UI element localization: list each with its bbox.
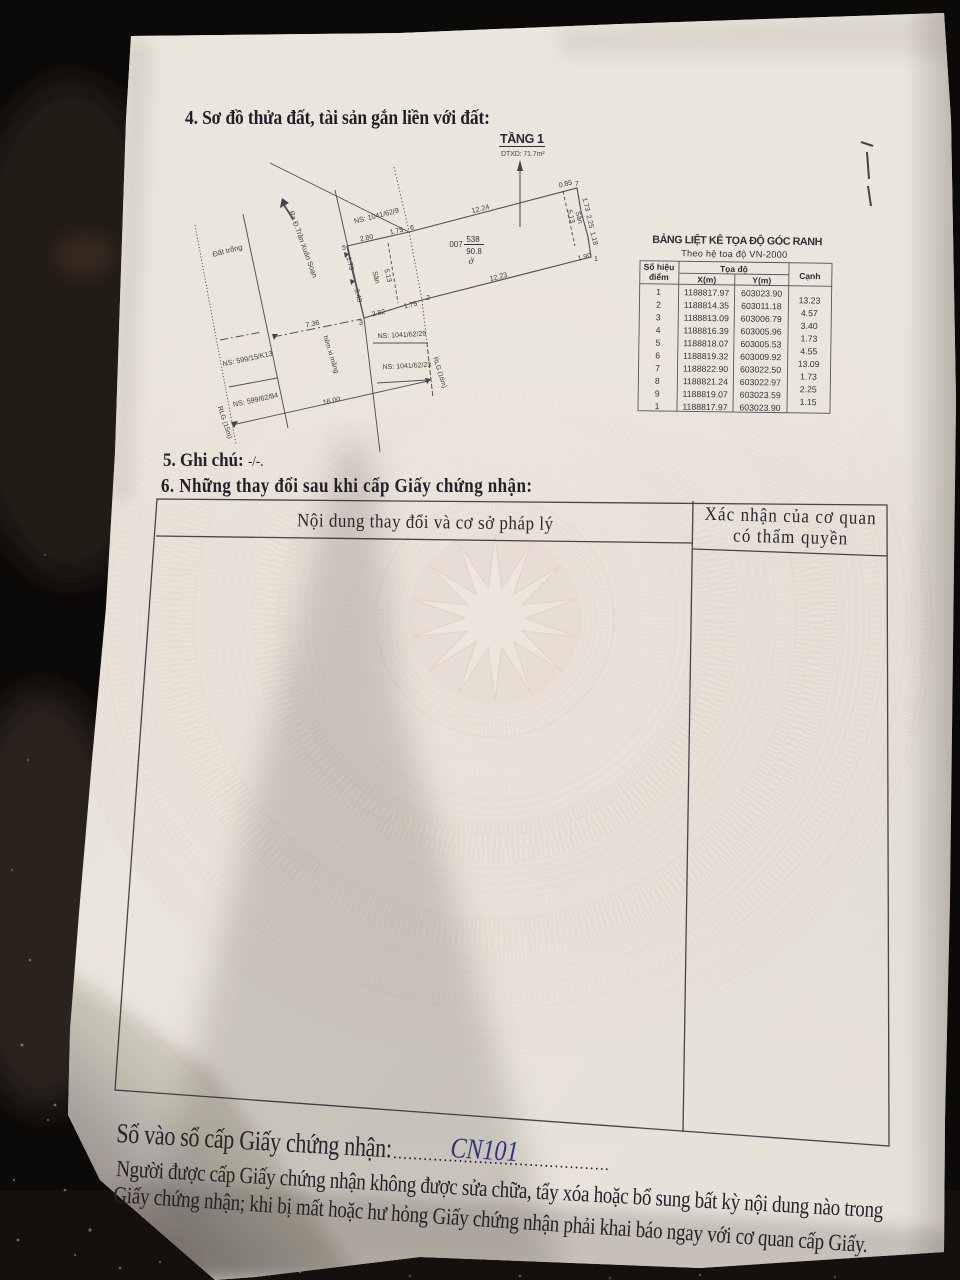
svg-text:X(m): X(m)	[697, 274, 716, 284]
svg-text:2.25: 2.25	[800, 384, 817, 394]
svg-text:1.73: 1.73	[800, 372, 817, 382]
svg-text:2: 2	[426, 295, 430, 302]
svg-text:603005.53: 603005.53	[740, 339, 781, 350]
svg-text:1.15: 1.15	[800, 397, 817, 407]
svg-text:4. Sơ đồ thửa đất, tài sản gắn: 4. Sơ đồ thửa đất, tài sản gắn liền với …	[185, 107, 490, 129]
svg-text:4.55: 4.55	[800, 346, 817, 356]
svg-text:DTXD: 71.7m²: DTXD: 71.7m²	[501, 151, 545, 158]
svg-text:3: 3	[359, 320, 363, 327]
svg-text:603006.79: 603006.79	[741, 313, 782, 324]
svg-text:7: 7	[575, 181, 579, 188]
svg-text:1188813.09: 1188813.09	[684, 313, 730, 324]
svg-text:603023.59: 603023.59	[740, 390, 781, 401]
svg-text:8: 8	[655, 376, 660, 386]
svg-text:Số hiệu: Số hiệu	[644, 262, 675, 272]
svg-text:Tọa độ: Tọa độ	[720, 264, 748, 274]
svg-text:4.57: 4.57	[801, 308, 818, 318]
svg-text:7: 7	[655, 363, 660, 373]
svg-text:603022.50: 603022.50	[740, 364, 781, 375]
svg-text:Theo hệ toạ độ VN-2000: Theo hệ toạ độ VN-2000	[681, 248, 787, 259]
svg-text:13.23: 13.23	[799, 295, 821, 305]
svg-text:9: 9	[655, 388, 660, 398]
svg-text:Xác nhận của cơ quan: Xác nhận của cơ quan	[704, 503, 875, 529]
svg-text:5: 5	[342, 245, 346, 252]
svg-text:007: 007	[449, 240, 463, 249]
svg-text:603005.96: 603005.96	[740, 326, 781, 337]
svg-text:603023.90: 603023.90	[741, 288, 782, 299]
svg-text:1188816.39: 1188816.39	[683, 325, 729, 336]
svg-text:1188822.90: 1188822.90	[683, 363, 729, 374]
svg-text:có thẩm quyền: có thẩm quyền	[733, 525, 848, 549]
svg-text:603022.97: 603022.97	[740, 377, 781, 388]
svg-text:1.73: 1.73	[800, 333, 817, 343]
svg-text:538: 538	[466, 235, 480, 244]
svg-text:Y(m): Y(m)	[752, 275, 771, 285]
svg-text:1188819.07: 1188819.07	[682, 389, 728, 400]
svg-text:TẦNG 1: TẦNG 1	[500, 131, 544, 146]
svg-text:1188814.35: 1188814.35	[684, 300, 730, 311]
svg-text:90.8: 90.8	[466, 247, 482, 256]
svg-text:1188817.97: 1188817.97	[684, 287, 730, 298]
svg-text:13.09: 13.09	[798, 359, 820, 369]
svg-text:1188817.97: 1188817.97	[682, 402, 728, 413]
svg-text:3: 3	[656, 312, 661, 322]
svg-text:3.40: 3.40	[801, 321, 818, 331]
svg-text:603011.18: 603011.18	[741, 301, 782, 312]
svg-text:6: 6	[410, 225, 414, 232]
svg-text:2: 2	[656, 300, 661, 310]
svg-text:603009.92: 603009.92	[740, 352, 781, 363]
svg-text:điểm: điểm	[649, 272, 669, 282]
svg-text:5: 5	[655, 338, 660, 348]
svg-text:4: 4	[656, 325, 661, 335]
svg-text:1188821.24: 1188821.24	[683, 376, 729, 387]
svg-text:1: 1	[655, 401, 660, 411]
svg-text:603023.90: 603023.90	[739, 402, 780, 413]
svg-text:Cạnh: Cạnh	[799, 271, 820, 281]
svg-text:1: 1	[656, 287, 661, 297]
svg-text:6: 6	[655, 350, 660, 360]
svg-text:BẢNG LIỆT KÊ TỌA ĐỘ GÓC RANH: BẢNG LIỆT KÊ TỌA ĐỘ GÓC RANH	[652, 233, 822, 248]
svg-text:1: 1	[594, 256, 598, 263]
svg-text:1188819.32: 1188819.32	[683, 351, 729, 362]
svg-text:1188818.07: 1188818.07	[683, 338, 729, 349]
